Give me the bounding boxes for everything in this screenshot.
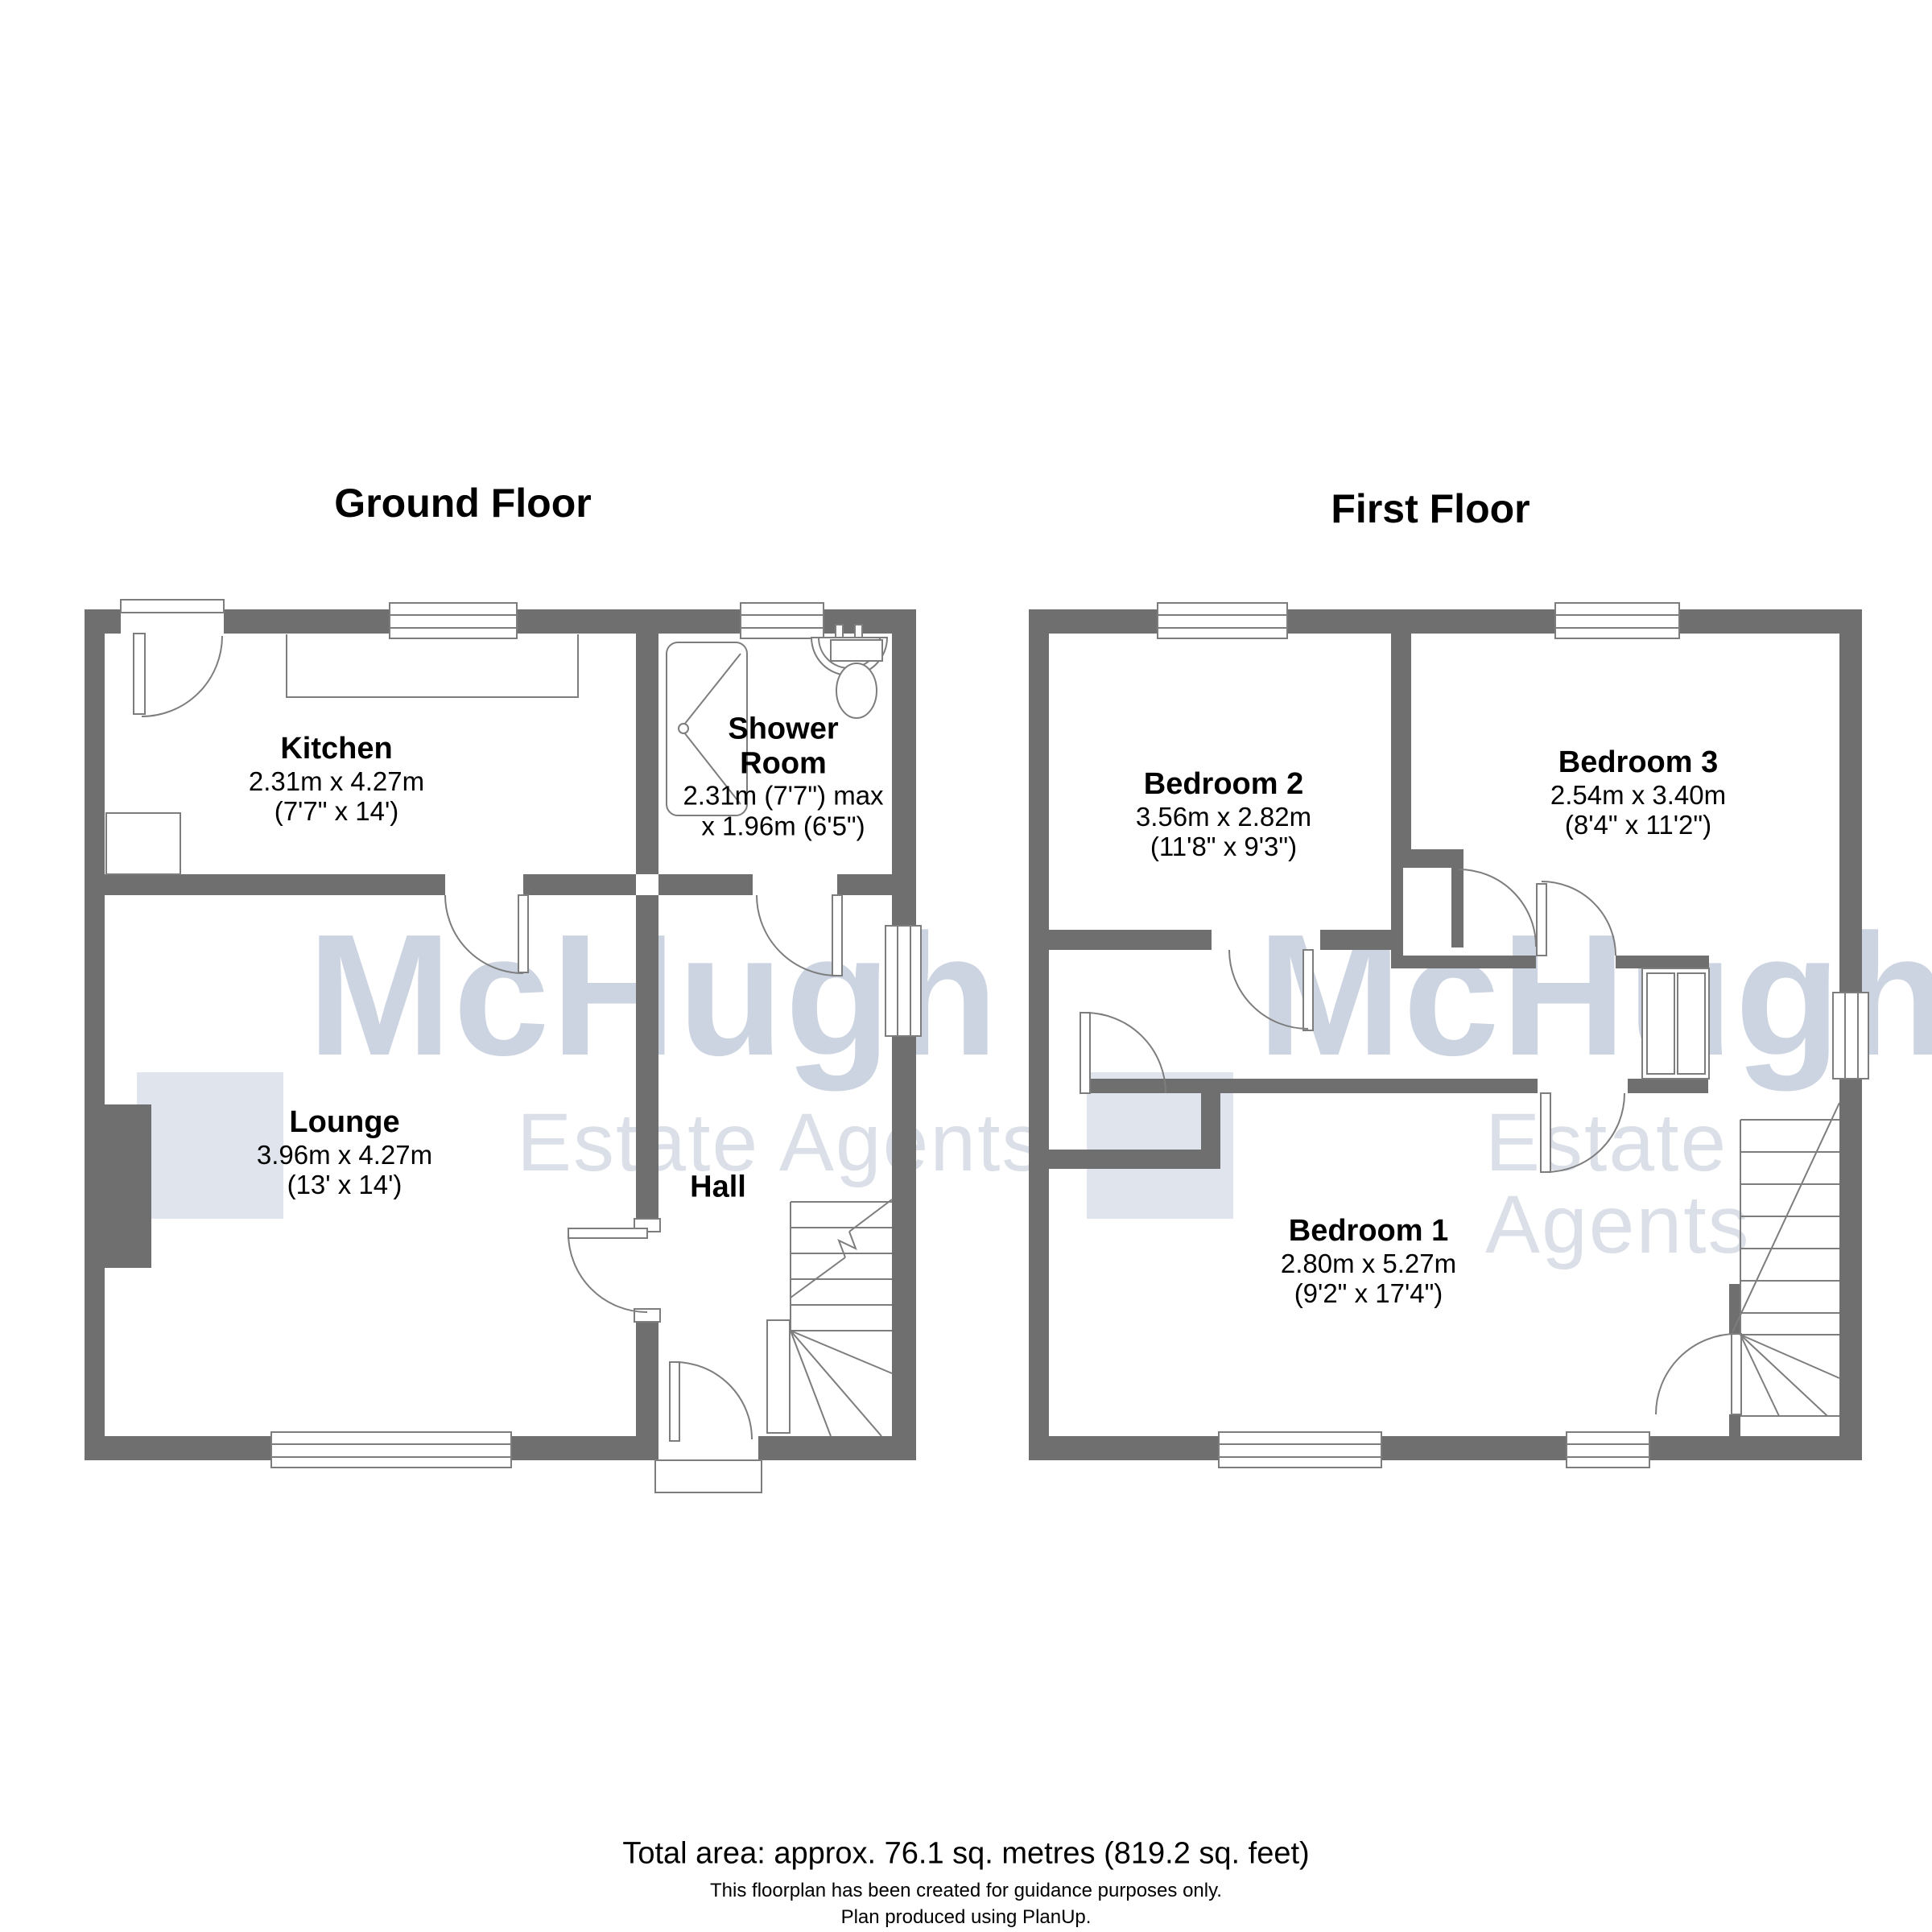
first-windows	[1158, 603, 1868, 1468]
room-name: Lounge	[257, 1105, 432, 1140]
room-dims-metric: 3.96m x 4.27m	[257, 1139, 432, 1170]
kitchen-counter	[287, 634, 578, 697]
room-name: Kitchen	[249, 732, 424, 766]
first-walls	[1029, 609, 1862, 1460]
room-label-lounge: Lounge 3.96m x 4.27m (13' x 14')	[257, 1105, 432, 1200]
room-dims-imperial: (7'7" x 14')	[249, 796, 424, 827]
front-door	[655, 1362, 762, 1492]
window-hall-side	[885, 926, 921, 1036]
bedroom2-door	[1229, 950, 1313, 1030]
window-bedroom1-right	[1567, 1432, 1649, 1468]
first-stairs	[1732, 1103, 1839, 1416]
shower-room-door	[757, 895, 842, 976]
total-area-text: Total area: approx. 76.1 sq. metres (819…	[622, 1837, 1309, 1872]
window-bedroom1-left	[1219, 1432, 1381, 1468]
lounge-door	[568, 1228, 647, 1312]
airing-cupboard	[1642, 968, 1709, 1079]
window-lounge	[271, 1432, 511, 1468]
room-label-bedroom3: Bedroom 3 2.54m x 3.40m (8'4" x 11'2")	[1550, 745, 1726, 840]
produced-by-text: Plan produced using PlanUp.	[841, 1906, 1092, 1929]
first-doors	[1080, 869, 1741, 1414]
room-dims-metric: 2.80m x 5.27m	[1281, 1248, 1456, 1278]
room-dims-metric: 2.31m (7'7") max	[683, 781, 883, 811]
landing-door	[1459, 869, 1536, 947]
room-label-bedroom1: Bedroom 1 2.80m x 5.27m (9'2" x 17'4")	[1281, 1214, 1456, 1309]
room-name: Hall	[690, 1170, 746, 1205]
room-dims-imperial: (9'2" x 17'4")	[1281, 1278, 1456, 1309]
floorplan-drawing	[0, 0, 1932, 1932]
bedroom1-door	[1541, 1093, 1624, 1172]
room-dims-imperial: (8'4" x 11'2")	[1550, 810, 1726, 840]
room-dims-imperial: (13' x 14')	[257, 1170, 432, 1200]
floorplan-canvas: McHugh Estate Agents McHugh Estate Agent…	[0, 0, 1932, 1932]
window-bedroom3	[1555, 603, 1679, 638]
ground-stairs	[767, 1199, 892, 1436]
stairs-top-door	[1656, 1334, 1741, 1414]
front-door-step	[655, 1460, 762, 1492]
room-dims-metric: 2.54m x 3.40m	[1550, 779, 1726, 810]
window-landing-side	[1833, 993, 1868, 1079]
window-shower-room	[741, 603, 824, 638]
room-dims-metric: 3.56m x 2.82m	[1136, 801, 1311, 832]
bedroom3-door	[1537, 881, 1616, 956]
room-dims-imperial: x 1.96m (6'5")	[683, 811, 883, 842]
room-dims-metric: 2.31m x 4.27m	[249, 766, 424, 796]
room-name: Bedroom 3	[1550, 745, 1726, 780]
room-name: Bedroom 2	[1136, 767, 1311, 802]
room-label-kitchen: Kitchen 2.31m x 4.27m (7'7" x 14')	[249, 732, 424, 827]
room-name: Shower Room	[688, 712, 877, 781]
window-bedroom2	[1158, 603, 1287, 638]
room-name: Bedroom 1	[1281, 1214, 1456, 1249]
window-kitchen	[390, 603, 517, 638]
room-dims-imperial: (11'8" x 9'3")	[1136, 832, 1311, 862]
first-floor-title: First Floor	[1331, 485, 1529, 532]
disclaimer-text: This floorplan has been created for guid…	[710, 1880, 1222, 1902]
ground-floor-title: Ground Floor	[334, 480, 591, 526]
toilet	[831, 640, 882, 718]
room-label-shower-room: Shower Room 2.31m (7'7") max x 1.96m (6'…	[683, 712, 883, 842]
kitchen-unit	[106, 813, 180, 874]
kitchen-door	[445, 895, 528, 973]
room-label-hall: Hall	[690, 1170, 746, 1205]
first-floor-plan	[1029, 603, 1868, 1468]
room-label-bedroom2: Bedroom 2 3.56m x 2.82m (11'8" x 9'3")	[1136, 767, 1311, 862]
